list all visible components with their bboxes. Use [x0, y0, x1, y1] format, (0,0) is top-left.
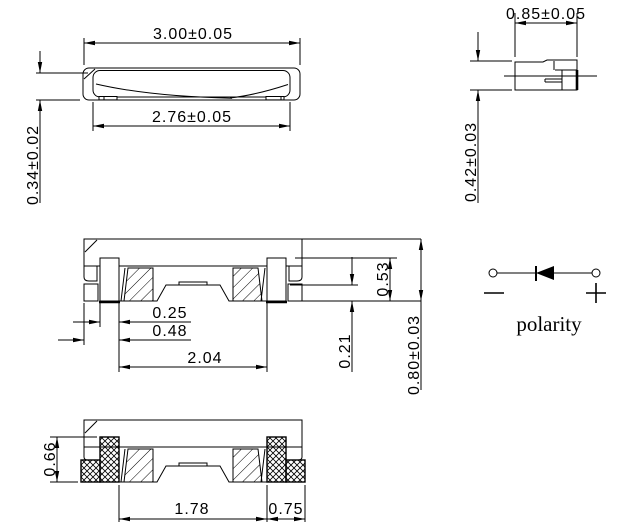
- polarity-terminal-left: [489, 269, 497, 277]
- front-hatch-right: [233, 268, 262, 301]
- dim-top-inner-width: 2.76±0.05: [152, 109, 232, 126]
- dim-body-height: 0.80±0.03: [406, 315, 423, 395]
- dim-side-height: 0.42±0.03: [463, 122, 480, 202]
- terminal-left-foot: [81, 460, 100, 482]
- terminal-right-foot: [286, 460, 305, 482]
- top-view-notch-left: [99, 97, 117, 100]
- drawing-canvas: 3.00±0.05 2.76±0.05 0.34±0.02 0.85±0.0: [0, 0, 625, 529]
- front-leg-left: [100, 258, 119, 301]
- top-view: 3.00±0.05 2.76±0.05 0.34±0.02: [25, 26, 300, 205]
- polarity-caption: polarity: [516, 312, 582, 336]
- front-section-view: 0.53 0.21 0.80±0.03 0.25 0.48 2.04: [58, 239, 423, 395]
- terminal-right: [267, 437, 286, 482]
- mechanical-drawing-sheet: 3.00±0.05 2.76±0.05 0.34±0.02 0.85±0.0: [0, 0, 625, 529]
- front-leg-right: [267, 258, 286, 301]
- front-hatch-left: [124, 268, 153, 301]
- dim-cavity-depth: 0.53: [375, 261, 392, 296]
- top-view-lens-outline: [93, 71, 290, 98]
- dim-pad-inset: 0.25: [152, 305, 187, 322]
- bottom-hatch-left: [124, 449, 153, 482]
- dim-pad-to-edge: 0.48: [152, 323, 187, 340]
- bottom-section-view: 0.66 1.78 0.75: [42, 420, 305, 522]
- dim-bottom-span: 1.78: [174, 501, 209, 518]
- terminal-left: [100, 437, 119, 482]
- dim-standoff: 0.21: [337, 333, 354, 368]
- dim-terminal-height: 0.66: [42, 441, 59, 476]
- polarity-symbol: polarity: [484, 266, 606, 336]
- side-view-body-outline: [515, 60, 577, 90]
- dim-top-edge-height: 0.34±0.02: [25, 125, 42, 205]
- top-view-body-outline: [83, 68, 300, 100]
- polarity-terminal-right: [592, 269, 600, 277]
- plus-sign-icon: [586, 283, 606, 303]
- dim-side-width: 0.85±0.05: [506, 6, 586, 23]
- front-chamfer-mark: [85, 240, 97, 252]
- bottom-chamfer-mark: [85, 421, 97, 433]
- lens-sweep-right: [230, 85, 288, 99]
- diode-triangle-icon: [536, 266, 554, 280]
- dim-pad-span: 2.04: [187, 350, 222, 367]
- bottom-hatch-right: [233, 449, 262, 482]
- side-view: 0.85±0.05 0.42±0.03: [463, 6, 597, 203]
- dim-bottom-pad-width: 0.75: [268, 501, 303, 518]
- dim-top-width: 3.00±0.05: [153, 26, 233, 43]
